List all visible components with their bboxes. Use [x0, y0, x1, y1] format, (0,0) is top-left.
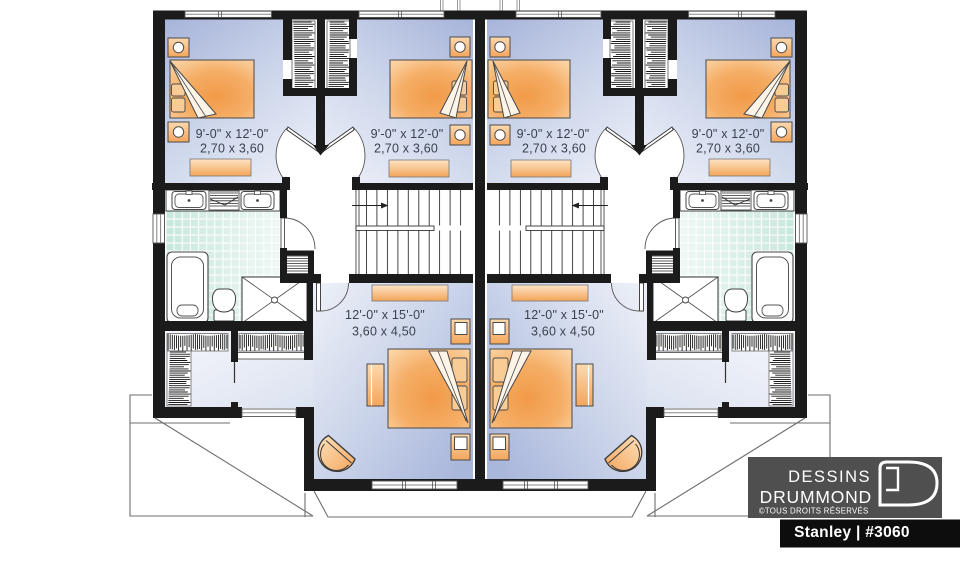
svg-text:2,70 x 3,60: 2,70 x 3,60	[696, 142, 760, 156]
svg-text:Stanley | #3060: Stanley | #3060	[794, 524, 910, 541]
svg-text:9'-0" x 12'-0": 9'-0" x 12'-0"	[196, 127, 269, 141]
svg-text:9'-0" x 12'-0": 9'-0" x 12'-0"	[517, 127, 590, 141]
svg-text:©TOUS DROITS RÉSERVÉS: ©TOUS DROITS RÉSERVÉS	[759, 507, 869, 516]
svg-text:9'-0" x 12'-0": 9'-0" x 12'-0"	[371, 127, 444, 141]
svg-text:2,70 x 3,60: 2,70 x 3,60	[200, 142, 264, 156]
svg-text:3,60 x 4,50: 3,60 x 4,50	[531, 325, 595, 339]
svg-text:DESSINS: DESSINS	[788, 468, 871, 486]
svg-text:3,60 x 4,50: 3,60 x 4,50	[352, 325, 416, 339]
svg-text:DRUMMOND: DRUMMOND	[760, 487, 872, 507]
svg-text:2,70 x 3,60: 2,70 x 3,60	[522, 142, 586, 156]
svg-text:12'-0" x 15'-0": 12'-0" x 15'-0"	[524, 308, 604, 322]
svg-text:12'-0" x 15'-0": 12'-0" x 15'-0"	[345, 308, 425, 322]
svg-text:2,70 x 3,60: 2,70 x 3,60	[374, 142, 438, 156]
svg-text:9'-0" x 12'-0": 9'-0" x 12'-0"	[692, 127, 765, 141]
